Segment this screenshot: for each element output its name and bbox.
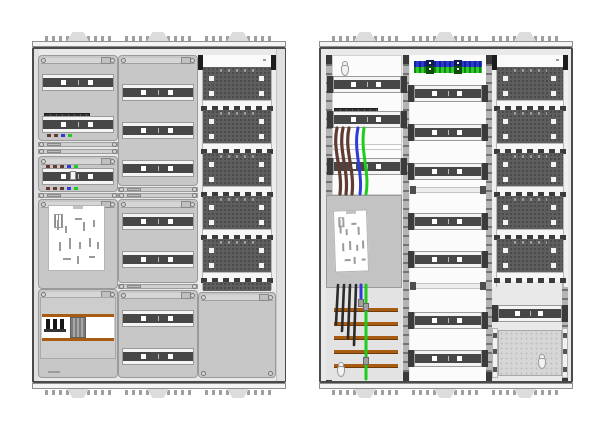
marker-row: [514, 112, 547, 115]
wire-clamp: [363, 357, 369, 365]
perforated-module: [203, 239, 271, 282]
rail-fixing-square: [259, 119, 264, 124]
rail-mid-tick: [158, 90, 159, 95]
perforated-plate: [497, 153, 563, 186]
rail-fixing-square: [457, 219, 462, 224]
sls-label-mark: [48, 371, 60, 373]
perforated-plate: [203, 110, 271, 143]
screw: [121, 58, 126, 63]
rail-fixing-square: [141, 354, 146, 359]
rail-fixing-square: [551, 134, 556, 139]
rail-fixing-square: [168, 354, 173, 359]
rail-fixing-square: [209, 76, 214, 81]
channel-cap: [271, 55, 276, 70]
din-rail-cover-strip: [333, 111, 401, 128]
din-rail: [334, 162, 400, 171]
marker-row: [220, 241, 254, 244]
rail-fixing-square: [209, 162, 214, 167]
hinge-strip: [118, 193, 198, 198]
keyhole-mark: [337, 362, 346, 378]
terminal-dot-blue: [67, 187, 71, 190]
cable-entry-bump: [67, 389, 89, 398]
hinge-strip: [118, 284, 198, 289]
hinge-slider: [127, 194, 141, 197]
keyhole-slot: [337, 366, 345, 377]
separator-end-block: [410, 282, 416, 290]
rail-end-cap: [327, 111, 333, 128]
sticker-text-mark: [356, 245, 358, 251]
rail-fixing-square: [503, 134, 508, 139]
sls-switch-body: [70, 317, 86, 338]
din-rail-cover-strip: [414, 312, 482, 329]
rail-mid-tick: [448, 130, 449, 135]
terminal-dot-white: [457, 68, 459, 70]
terminal-dot-green: [68, 134, 72, 137]
rail-fixing-square: [503, 205, 508, 210]
cable-entry-bump: [514, 389, 536, 398]
screw: [190, 293, 195, 298]
header-mark: [556, 59, 559, 61]
rail-mid-tick: [158, 128, 159, 133]
rail-end-cap: [562, 305, 568, 322]
plate-clip: [563, 367, 567, 372]
din-rail: [415, 128, 481, 137]
rail-fixing-square: [503, 220, 508, 225]
rail-fixing-square: [457, 356, 462, 361]
rail-fixing-square: [88, 80, 93, 85]
sticker-tab: [346, 211, 356, 214]
rail-mid-tick: [158, 166, 159, 171]
rail-fixing-square: [551, 119, 556, 124]
din-rail: [123, 217, 193, 226]
screw: [192, 284, 197, 289]
rail-fixing-square: [432, 257, 437, 262]
sticker-text-mark: [65, 226, 67, 233]
rail-fixing-square: [259, 76, 264, 81]
plate-clip: [493, 349, 497, 354]
rail-fixing-square: [88, 174, 93, 179]
cable-entry-bump: [227, 32, 249, 41]
perforated-module: [497, 153, 563, 196]
sticker-text-mark: [351, 223, 356, 225]
din-rail-cover-strip: [42, 168, 114, 185]
rail-end-cap: [482, 213, 488, 230]
screw: [110, 202, 115, 207]
perforated-module: [203, 67, 271, 110]
perforated-plate: [497, 67, 563, 100]
meter-field-sticker: [48, 205, 105, 271]
din-rail-cover-strip: [333, 76, 401, 93]
rail-fixing-square: [457, 257, 462, 262]
rail-end-cap: [408, 213, 414, 230]
side-channel: [563, 55, 568, 287]
rail-fixing-square: [551, 91, 556, 96]
sticker-text-mark: [57, 220, 59, 230]
rail-end-cap: [482, 124, 488, 141]
rail-fixing-square: [209, 134, 214, 139]
din-rail: [43, 78, 113, 87]
hinge-strip: [118, 187, 198, 192]
cable-entry-bump: [67, 32, 89, 41]
screw: [201, 295, 206, 300]
wiring-duct-strip: [332, 144, 402, 150]
wiring-comb-strip: [203, 143, 271, 153]
separator-end-block: [410, 186, 416, 194]
comb-teeth: [494, 278, 566, 283]
wiring-comb-strip: [497, 186, 563, 196]
din-rail: [415, 217, 481, 226]
rail-fixing-square: [432, 356, 437, 361]
rail-fixing-square: [61, 80, 66, 85]
screw: [41, 202, 46, 207]
rail-mid-tick: [78, 80, 79, 85]
screw: [112, 149, 117, 154]
perforated-plate: [203, 67, 271, 100]
rail-mid-tick: [158, 354, 159, 359]
rail-mid-tick: [158, 316, 159, 321]
screw: [112, 142, 117, 147]
screw: [119, 284, 124, 289]
sticker-text-mark: [89, 238, 91, 247]
rail-fixing-square: [503, 177, 508, 182]
marker-row: [220, 198, 254, 201]
keyhole-mark: [538, 354, 547, 370]
din-rail: [415, 316, 481, 325]
wiring-comb-strip: [203, 100, 271, 110]
rail-fixing-square: [351, 164, 356, 169]
blank-cover: [198, 292, 276, 378]
plate-clip: [493, 333, 497, 338]
terminal-dot-white: [429, 68, 431, 70]
rail-end-cap: [408, 251, 414, 268]
terminal-dot-brown: [54, 134, 58, 137]
perforated-plate: [203, 239, 271, 272]
screw: [268, 295, 273, 300]
perforated-plate: [203, 153, 271, 186]
rail-fixing-square: [141, 316, 146, 321]
rail-fixing-square: [209, 119, 214, 124]
rail-mid-tick: [448, 219, 449, 224]
din-rail: [334, 80, 400, 89]
din-rail: [123, 88, 193, 97]
din-rail-cover-strip: [414, 350, 482, 367]
rail-fixing-square: [141, 219, 146, 224]
rail-mid-tick: [448, 257, 449, 262]
rail-fixing-square: [259, 91, 264, 96]
rail-end-cap: [482, 350, 488, 367]
sticker-tab: [73, 206, 83, 209]
rail-fixing-square: [141, 257, 146, 262]
perforated-module: [203, 196, 271, 239]
sticker-text-mark: [59, 242, 61, 251]
rail-end-cap: [327, 76, 333, 93]
rail-mid-tick: [448, 91, 449, 96]
rail-fixing-square: [503, 263, 508, 268]
plate-side-channel: [492, 328, 498, 378]
rail-fixing-square: [168, 219, 173, 224]
terminal-dot-brown: [53, 187, 57, 190]
rail-end-cap: [482, 85, 488, 102]
keyhole-mark: [341, 61, 350, 77]
wiring-comb-strip: [497, 100, 563, 110]
rail-fixing-square: [259, 162, 264, 167]
sls-switch-pole: [46, 319, 50, 329]
din-rail: [415, 255, 481, 264]
din-rail-cover-strip: [122, 251, 194, 268]
screw: [268, 371, 273, 376]
rail-fixing-square: [259, 205, 264, 210]
wiring-comb-strip: [497, 229, 563, 239]
busbar-copper: [334, 336, 398, 340]
din-rail-cover-strip: [122, 160, 194, 177]
screw: [112, 193, 117, 198]
rail-end-cap: [327, 158, 333, 175]
rail-mid-tick: [78, 122, 79, 127]
sticker-text-mark: [358, 227, 360, 235]
profile-cap: [403, 55, 409, 64]
plate-clip: [563, 333, 567, 338]
rail-fixing-square: [141, 128, 146, 133]
rail-end-cap: [408, 312, 414, 329]
sls-busbar-window: [42, 314, 114, 341]
wiring-comb-strip: [497, 143, 563, 153]
rail-fixing-square: [457, 318, 462, 323]
rail-fixing-square: [168, 128, 173, 133]
rail-fixing-square: [551, 263, 556, 268]
cable-entry-bump: [227, 389, 249, 398]
wiring-comb-strip: [497, 272, 563, 282]
din-rail-cover-strip: [122, 310, 194, 327]
rail-fixing-square: [551, 248, 556, 253]
perforated-plate: [497, 196, 563, 229]
cover-section: [118, 199, 198, 283]
rail-end-cap: [482, 163, 488, 180]
rail-fixing-square: [168, 316, 173, 321]
marker-row: [220, 69, 254, 72]
rail-fixing-square: [376, 82, 381, 87]
rail-fixing-square: [376, 164, 381, 169]
hinge-slider: [127, 285, 141, 288]
bottom-flange-strip: [319, 383, 573, 389]
rail-fixing-square: [259, 263, 264, 268]
din-rail: [123, 164, 193, 173]
screw: [121, 202, 126, 207]
din-rail-cover-strip: [498, 305, 562, 322]
screw: [201, 371, 206, 376]
rail-end-cap: [408, 163, 414, 180]
marker-row: [514, 198, 547, 201]
sls-switch-base: [44, 329, 66, 332]
din-rail-cover-strip: [122, 122, 194, 139]
rail-end-cap: [408, 124, 414, 141]
rail-mid-tick: [448, 356, 449, 361]
sticker-text-mark: [93, 220, 95, 227]
din-rail-cover-strip: [42, 74, 114, 91]
rail-fixing-square: [168, 166, 173, 171]
rail-fixing-square: [503, 248, 508, 253]
keyhole-slot: [341, 65, 349, 76]
rail-fixing-square: [209, 248, 214, 253]
rail-mid-tick: [158, 219, 159, 224]
hinge-slider: [47, 143, 61, 146]
screw: [110, 159, 115, 164]
marker-row: [514, 241, 547, 244]
perforated-plate: [203, 196, 271, 229]
header-band: [203, 55, 271, 67]
perforated-module: [203, 153, 271, 196]
rail-fixing-square: [209, 91, 214, 96]
din-rail: [123, 314, 193, 323]
rail-fixing-square: [168, 257, 173, 262]
sticker-text-mark: [75, 218, 82, 220]
marker-row: [220, 112, 254, 115]
perforated-module: [497, 239, 563, 282]
rail-mid-tick: [78, 174, 79, 179]
rail-fixing-square: [551, 220, 556, 225]
keyhole-slot: [538, 358, 546, 369]
perforated-module: [497, 67, 563, 110]
terminal-dot-white: [429, 62, 431, 64]
din-rail-cover-strip: [333, 158, 401, 175]
cable-entry-bump: [434, 32, 456, 41]
screw: [121, 293, 126, 298]
rail-end-cap: [401, 158, 407, 175]
screw: [119, 187, 124, 192]
sls-switch-pole: [53, 319, 57, 329]
side-channel: [271, 55, 276, 290]
rail-fixing-square: [551, 76, 556, 81]
separator-end-block: [480, 186, 486, 194]
din-rail-cover-strip: [414, 163, 482, 180]
busbar-copper: [334, 322, 398, 326]
screw: [192, 193, 197, 198]
din-rail: [123, 352, 193, 361]
sls-switch-pole: [60, 319, 64, 329]
rail-fixing-square: [538, 311, 543, 316]
rail-mid-tick: [158, 257, 159, 262]
plate-clip: [493, 367, 497, 372]
terminal-dot-white: [457, 62, 459, 64]
rail-end-cap: [401, 111, 407, 128]
wire-clamp: [363, 303, 369, 311]
rail-mid-tick: [448, 169, 449, 174]
hinge-slider: [47, 194, 61, 197]
hinge-slider: [127, 188, 141, 191]
channel-cap: [563, 55, 568, 70]
rail-mid-tick: [530, 311, 531, 316]
rail-fixing-square: [515, 311, 520, 316]
rail-fixing-square: [551, 205, 556, 210]
wiring-comb-strip: [203, 229, 271, 239]
screw: [39, 193, 44, 198]
din-rail-cover-strip: [122, 84, 194, 101]
rail-fixing-square: [503, 91, 508, 96]
hinge-strip: [38, 142, 118, 147]
rail-fixing-square: [259, 177, 264, 182]
rail-fixing-square: [551, 162, 556, 167]
separator-end-block: [480, 282, 486, 290]
cable-entry-bump: [354, 32, 376, 41]
header-mark: [263, 59, 266, 61]
sticker-text-mark: [362, 241, 364, 249]
cable-entry-bump: [354, 389, 376, 398]
screw: [119, 193, 124, 198]
terminal-dot-brown: [60, 187, 64, 190]
perforated-plate: [497, 239, 563, 272]
rail-fixing-square: [141, 166, 146, 171]
din-rail-cover-strip: [414, 85, 482, 102]
din-rail: [123, 126, 193, 135]
terminal-dot-green: [74, 187, 78, 190]
marker-row: [514, 69, 547, 72]
rail-fixing-square: [432, 130, 437, 135]
rail-mid-tick: [448, 318, 449, 323]
hinge-strip: [38, 193, 118, 198]
header-band: [497, 55, 563, 67]
din-rail-cover-strip: [414, 124, 482, 141]
sticker-text-mark: [89, 256, 95, 258]
rail-fixing-square: [432, 169, 437, 174]
rail-fixing-square: [432, 219, 437, 224]
screw: [41, 58, 46, 63]
rail-fixing-square: [209, 220, 214, 225]
perforated-module: [497, 110, 563, 153]
sticker-text-mark: [362, 259, 366, 261]
rail-end-cap: [408, 350, 414, 367]
din-rail-cover-strip: [42, 116, 114, 133]
sticker-text-mark: [79, 242, 81, 249]
din-rail: [43, 172, 113, 181]
perforated-module: [203, 110, 271, 153]
cabinet-open-wiring: [317, 30, 575, 400]
perforated-filler: [203, 282, 271, 291]
terminal-block: [454, 66, 462, 74]
meter-field-sticker: [333, 209, 369, 272]
rail-mid-tick: [367, 82, 368, 87]
hinge-strip: [38, 149, 118, 154]
rail-fixing-square: [351, 82, 356, 87]
hinge-slider: [47, 150, 61, 153]
screw: [190, 58, 195, 63]
cable-entry-bump: [434, 389, 456, 398]
din-rail-cover-strip: [122, 348, 194, 365]
marker-row: [514, 155, 547, 158]
side-margin: [276, 49, 285, 381]
pe-terminal-strip: [414, 67, 482, 73]
rail-fixing-square: [141, 90, 146, 95]
busbar-copper: [334, 350, 398, 354]
section-separator-strip: [410, 283, 486, 289]
screw: [190, 202, 195, 207]
wiring-comb-strip: [203, 272, 271, 282]
rail-fixing-square: [432, 91, 437, 96]
sticker-text-mark: [77, 256, 79, 264]
rail-mid-tick: [367, 164, 368, 169]
rail-fixing-square: [432, 318, 437, 323]
din-rail: [499, 309, 561, 318]
sticker-text-mark: [342, 243, 344, 251]
rail-fixing-square: [209, 263, 214, 268]
rail-end-cap: [482, 251, 488, 268]
rail-end-cap: [401, 76, 407, 93]
screw: [192, 187, 197, 192]
perforated-plate: [497, 110, 563, 143]
din-rail-cover-strip: [122, 213, 194, 230]
device-window: [70, 171, 76, 180]
cabinet-with-covers: [30, 30, 288, 400]
rail-mid-tick: [367, 117, 368, 122]
terminal-dot-blue: [61, 134, 65, 137]
